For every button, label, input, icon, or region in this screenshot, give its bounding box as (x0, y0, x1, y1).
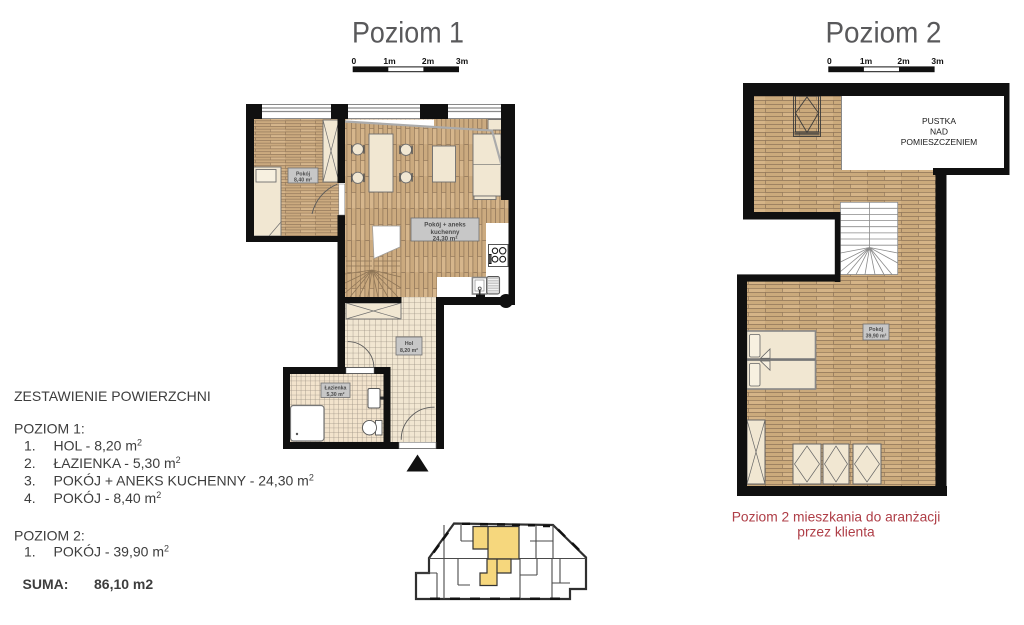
svg-text:5,30 m²: 5,30 m² (327, 392, 345, 398)
svg-text:Poziom 2 mieszkania do aranżac: Poziom 2 mieszkania do aranżacji (732, 510, 941, 525)
svg-text:24,30 m²: 24,30 m² (433, 236, 458, 243)
svg-text:PUSTKA: PUSTKA (922, 116, 956, 126)
svg-text:POKÓJ - 39,90 m2: POKÓJ - 39,90 m2 (54, 544, 170, 560)
svg-text:2m: 2m (422, 56, 435, 66)
svg-text:2m: 2m (897, 56, 910, 66)
svg-text:POMIESZCZENIEM: POMIESZCZENIEM (901, 137, 978, 147)
svg-text:POKÓJ + ANEKS KUCHENNY - 24,30: POKÓJ + ANEKS KUCHENNY - 24,30 m2 (54, 473, 314, 489)
svg-text:NAD: NAD (930, 127, 948, 137)
svg-text:ŁAZIENKA - 5,30 m2: ŁAZIENKA - 5,30 m2 (54, 455, 181, 471)
svg-text:1.: 1. (24, 544, 36, 560)
svg-text:0: 0 (352, 56, 357, 66)
svg-text:POZIOM 1:: POZIOM 1: (14, 421, 85, 437)
svg-text:86,10 m2: 86,10 m2 (94, 576, 153, 592)
svg-text:HOL - 8,20 m2: HOL - 8,20 m2 (54, 438, 143, 454)
svg-text:3.: 3. (24, 473, 36, 489)
svg-text:Łazienka: Łazienka (325, 386, 347, 392)
svg-text:ZESTAWIENIE POWIERZCHNI: ZESTAWIENIE POWIERZCHNI (14, 388, 211, 404)
svg-text:Hol: Hol (405, 341, 414, 347)
svg-text:przez klienta: przez klienta (797, 525, 875, 540)
svg-text:Pokój: Pokój (869, 327, 884, 333)
svg-text:Poziom 2: Poziom 2 (826, 17, 942, 50)
svg-text:1m: 1m (383, 56, 396, 66)
svg-text:POKÓJ - 8,40 m2: POKÓJ - 8,40 m2 (54, 490, 162, 506)
svg-text:1m: 1m (860, 56, 873, 66)
svg-text:SUMA:: SUMA: (23, 576, 69, 592)
svg-text:3m: 3m (931, 56, 944, 66)
svg-text:3m: 3m (456, 56, 469, 66)
svg-text:4.: 4. (24, 490, 36, 506)
svg-text:2.: 2. (24, 455, 36, 471)
svg-text:Pokój + aneks: Pokój + aneks (424, 222, 466, 229)
svg-text:POZIOM 2:: POZIOM 2: (14, 528, 85, 544)
svg-text:Poziom 1: Poziom 1 (352, 17, 464, 50)
svg-text:8,20 m²: 8,20 m² (400, 348, 418, 354)
svg-text:39,90 m²: 39,90 m² (866, 334, 887, 340)
svg-text:1.: 1. (24, 438, 36, 454)
svg-text:0: 0 (827, 56, 832, 66)
svg-text:8,40 m²: 8,40 m² (294, 178, 312, 184)
